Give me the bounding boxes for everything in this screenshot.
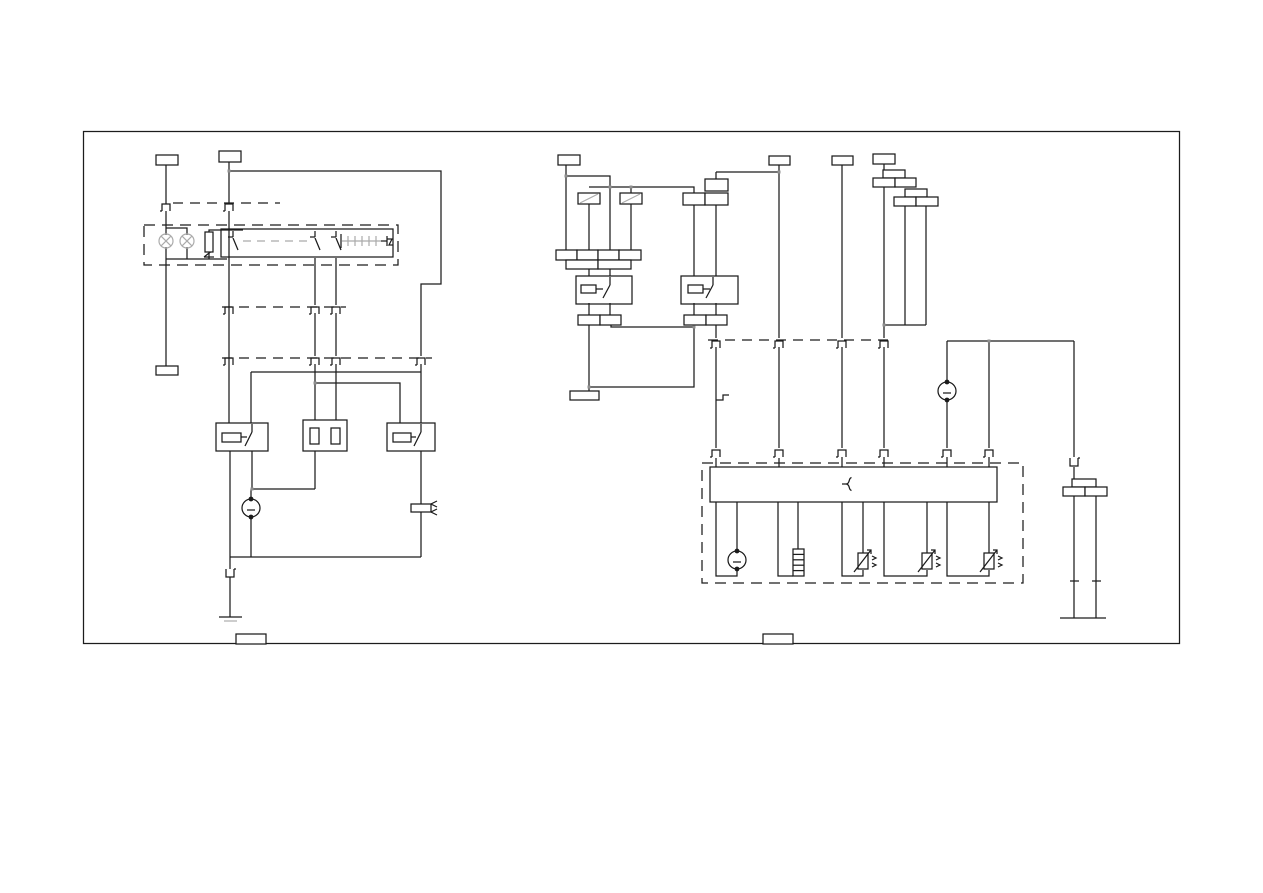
connector-pin-icon [311, 358, 319, 365]
connector-bar [705, 179, 728, 191]
terminal-connector [219, 151, 241, 162]
connector-pin-icon [880, 341, 888, 348]
sensor-chevron [936, 563, 940, 567]
motor-terminal-dot [249, 497, 254, 502]
wire [233, 238, 238, 250]
junction-dot [251, 488, 254, 491]
connector-pin-icon [225, 204, 233, 211]
connector-bar [578, 315, 600, 325]
wiring-diagram-canvas [0, 0, 1263, 893]
terminal-connector [832, 156, 853, 165]
connector-bar [566, 260, 598, 269]
connector-bar [1085, 487, 1107, 496]
motor-icon [242, 499, 260, 517]
connector-bar [619, 250, 641, 260]
wire [884, 502, 927, 576]
wire [166, 228, 187, 235]
coil-resistor [393, 433, 411, 442]
connector-bar [916, 197, 938, 206]
wire [716, 395, 729, 400]
junction-dot [883, 324, 886, 327]
control-unit-box [710, 467, 997, 502]
connector-pin-icon [775, 450, 783, 457]
connector-pin-icon [712, 341, 720, 348]
wire [603, 285, 610, 298]
wire [589, 325, 694, 387]
wire [947, 502, 989, 576]
connector-bar [598, 250, 619, 260]
terminal-connector [156, 366, 178, 375]
connector-bar [600, 315, 621, 325]
junction-dot [778, 171, 781, 174]
connector-pin-icon [332, 358, 340, 365]
motor-terminal-dot [249, 515, 254, 520]
wire [431, 501, 437, 507]
motor-terminal-dot [735, 549, 740, 554]
wire [209, 230, 243, 232]
heater-element-icon [793, 549, 804, 576]
junction-dot [609, 186, 612, 189]
coil-resistor [331, 428, 340, 444]
connector-pin-icon [838, 450, 846, 457]
connector-bar [883, 170, 905, 178]
sensor-chevron [872, 563, 876, 567]
connector-bar [873, 178, 895, 187]
junction-dot [988, 340, 991, 343]
wire [778, 502, 793, 576]
motor-icon [938, 382, 956, 400]
connector-bar [556, 250, 577, 260]
connector-bar [1063, 487, 1085, 496]
ground-pin-icon [226, 569, 234, 577]
coil-resistor [688, 285, 703, 293]
connector-pin-icon [880, 450, 888, 457]
terminal-connector [769, 156, 790, 165]
terminal-connector [156, 155, 178, 165]
coil-resistor [310, 428, 319, 444]
wire [589, 187, 694, 193]
junction-dot [314, 382, 317, 385]
junction-dot [228, 170, 231, 173]
schematic-page [0, 0, 1263, 893]
connector-bar [684, 315, 706, 325]
wire [229, 171, 441, 356]
connector-pin-icon [775, 341, 783, 348]
connector-pin-icon [332, 307, 340, 314]
connector-bar [705, 193, 728, 205]
motor-terminal-dot [945, 398, 950, 403]
connector-pin-icon [943, 450, 951, 457]
wire [414, 432, 421, 446]
junction-dot [588, 386, 591, 389]
switch-assembly-box [221, 229, 393, 257]
connector-pin-icon [838, 341, 846, 348]
sensor-chevron [998, 556, 1002, 560]
fuse [411, 504, 431, 512]
terminal-connector [873, 154, 895, 164]
motor-icon [728, 551, 746, 569]
page-tab [236, 634, 266, 644]
ground-pin-icon [1070, 458, 1078, 466]
wire [706, 285, 713, 298]
connector-bar [905, 189, 927, 197]
connector-pin-icon [417, 358, 425, 365]
connector-bar [895, 178, 916, 187]
junction-dot [565, 175, 568, 178]
connector-bar [683, 193, 705, 205]
connector-pin-icon [311, 307, 319, 314]
connector-bar [1072, 479, 1096, 487]
connector-bar [577, 250, 598, 260]
wire [336, 238, 341, 250]
terminal-connector [570, 391, 599, 400]
wire [315, 238, 320, 250]
wire [245, 432, 252, 446]
sensor-chevron [936, 556, 940, 560]
connector-pin-icon [712, 450, 720, 457]
wire [315, 383, 400, 423]
connector-bar [598, 260, 631, 269]
connector-bar [894, 197, 916, 206]
connector-bar [706, 315, 727, 325]
junction-dot [630, 186, 633, 189]
wire [431, 509, 437, 515]
connector-pin-icon [162, 204, 170, 211]
motor-terminal-dot [735, 567, 740, 572]
coil-resistor [581, 285, 596, 293]
sensor-chevron [872, 556, 876, 560]
page-tab [763, 634, 793, 644]
connector-pin-icon [985, 450, 993, 457]
terminal-connector [558, 155, 580, 165]
wire [387, 239, 393, 245]
sensor-chevron [998, 563, 1002, 567]
motor-terminal-dot [945, 380, 950, 385]
coil-resistor [205, 232, 213, 252]
junction-dot [693, 326, 696, 329]
coil-resistor [222, 433, 241, 442]
